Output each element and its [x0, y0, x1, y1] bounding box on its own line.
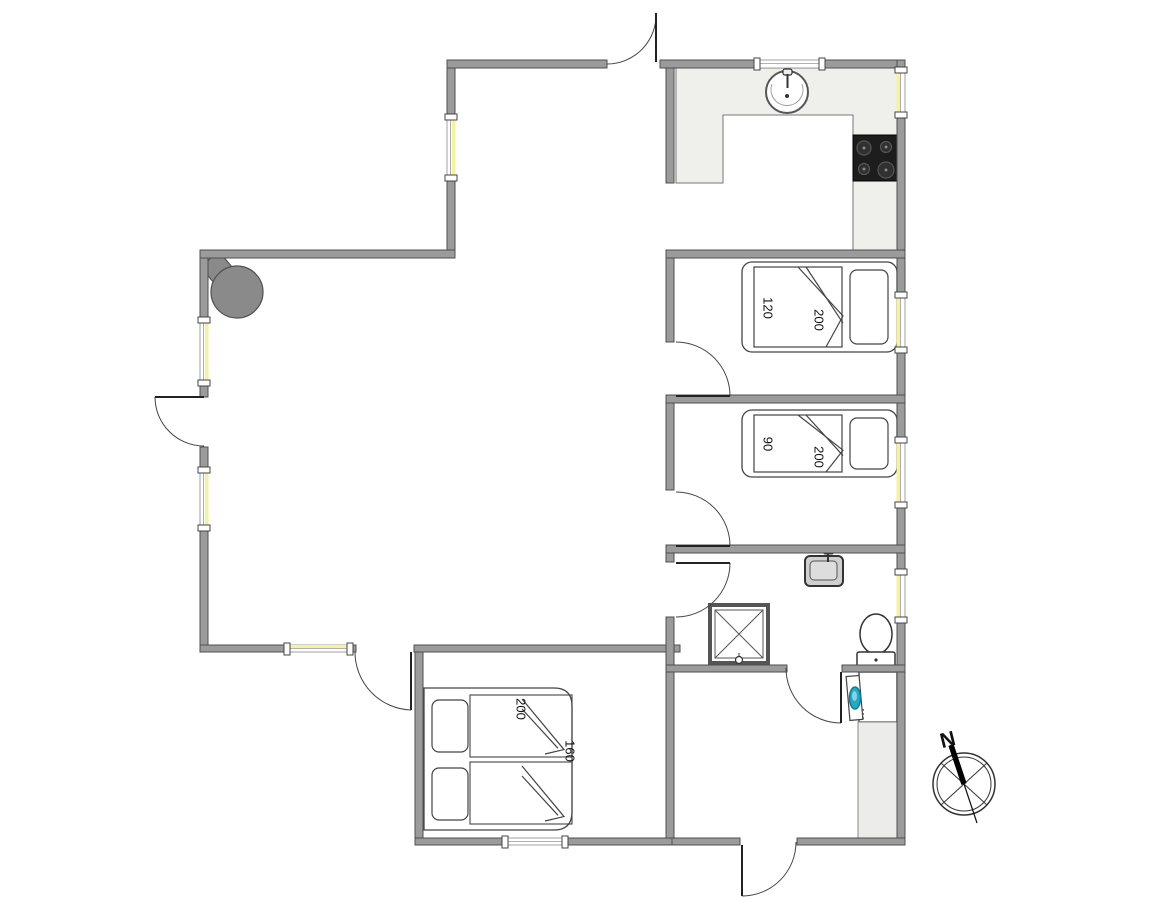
wall [200, 250, 455, 258]
window-sill-cap [895, 67, 907, 73]
bed-pillow [432, 768, 468, 820]
window-glass [205, 322, 209, 381]
window [754, 58, 825, 70]
wall [822, 60, 905, 68]
utility-cabinet [858, 722, 897, 842]
wall [666, 553, 674, 562]
window-sill-cap [198, 380, 210, 386]
burner-center [885, 146, 888, 149]
wall [897, 620, 905, 845]
window-sill-cap [895, 502, 907, 508]
wall [200, 645, 287, 652]
wall [797, 838, 905, 845]
wall [414, 645, 680, 652]
window-sill-cap [502, 836, 508, 848]
window-glass [897, 72, 901, 113]
burner-center [885, 169, 888, 172]
wall [447, 178, 455, 258]
bed-pillow [432, 700, 468, 752]
window-sill-cap [284, 643, 290, 655]
washer-body [859, 672, 897, 722]
wall [200, 528, 208, 652]
burner-center [863, 168, 866, 171]
burner-center [863, 147, 866, 150]
window-opening [757, 60, 822, 68]
background [0, 0, 1152, 897]
window-sill-cap [562, 836, 568, 848]
window-sill-cap [895, 437, 907, 443]
bed-dimension-label: 200 [812, 446, 827, 468]
window-glass [452, 119, 456, 176]
wall [666, 403, 674, 490]
window-glass [897, 297, 901, 348]
bed-dimension-label: 160 [563, 740, 578, 762]
bed-dimension-label: 200 [514, 698, 529, 720]
wall [672, 838, 740, 845]
wall [897, 505, 905, 572]
toilet-bowl [860, 614, 892, 654]
window-sill-cap [445, 175, 457, 181]
window [895, 569, 907, 623]
window [445, 114, 457, 181]
sink-bowl [810, 561, 837, 580]
toilet-button [874, 658, 877, 661]
wall [565, 838, 672, 845]
window-sill-cap [895, 569, 907, 575]
bed-dimension-label: 90 [761, 437, 776, 451]
washer-knob [862, 713, 864, 715]
stove-body [211, 266, 263, 318]
wall [200, 258, 208, 320]
wall [660, 60, 757, 68]
window-sill-cap [754, 58, 760, 70]
wall [897, 115, 905, 295]
window-glass [289, 645, 348, 648]
toilet [857, 614, 895, 668]
window-glass [205, 472, 209, 526]
window-sill-cap [198, 525, 210, 531]
wall [447, 68, 455, 117]
window-sill-cap [347, 643, 353, 655]
wall [666, 250, 905, 258]
bed-pillow [850, 418, 888, 469]
window [198, 317, 210, 386]
washing-machine [846, 672, 897, 722]
window [198, 467, 210, 531]
wall [415, 838, 505, 845]
wall [666, 617, 674, 838]
window-glass [897, 574, 901, 618]
window [895, 292, 907, 353]
cabinet-shape [858, 722, 897, 842]
shower-drain [736, 657, 743, 664]
window-sill-cap [895, 112, 907, 118]
window-sill-cap [895, 617, 907, 623]
double-bed-200x160 [424, 688, 572, 830]
wall [666, 258, 674, 342]
washer-knob [862, 717, 864, 719]
washer-knob [862, 709, 864, 711]
washer-porthole-glare [852, 691, 857, 701]
sink-drain [785, 94, 789, 98]
cooktop [853, 135, 897, 181]
window-glass [897, 442, 901, 503]
shower [710, 605, 768, 664]
window-sill-cap [198, 317, 210, 323]
window-sill-cap [198, 467, 210, 473]
window-sill-cap [819, 58, 825, 70]
bed-dimension-label: 200 [812, 309, 827, 331]
bed-pillow [850, 270, 888, 344]
wall [666, 665, 787, 672]
bathroom-sink [805, 550, 843, 586]
floor-plan: 12020090200200160N [0, 0, 1152, 897]
window [895, 437, 907, 508]
window-sill-cap [445, 114, 457, 120]
wall [415, 652, 423, 845]
bed-dimension-label: 120 [761, 297, 776, 319]
wall [842, 665, 905, 672]
wall [447, 60, 607, 68]
window [895, 67, 907, 118]
window-sill-cap [895, 347, 907, 353]
floor-plan-canvas: 12020090200200160N [0, 0, 1152, 897]
wall [666, 68, 674, 183]
window-sill-cap [895, 292, 907, 298]
